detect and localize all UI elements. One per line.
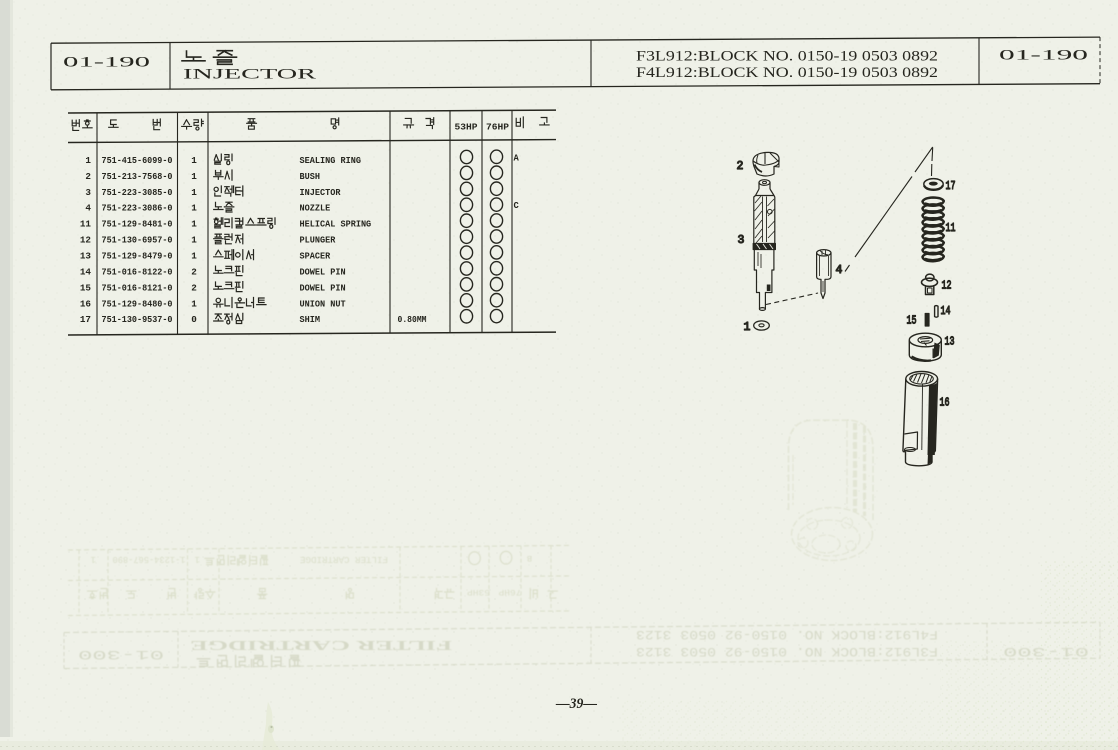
svg-text:1: 1: [191, 251, 197, 262]
svg-text:SHIM: SHIM: [300, 314, 321, 325]
svg-text:1: 1: [191, 171, 197, 182]
svg-text:NOZZLE: NOZZLE: [300, 203, 331, 214]
svg-text:751-129-8479-0: 751-129-8479-0: [102, 251, 173, 262]
svg-text:01-190: 01-190: [999, 48, 1088, 64]
svg-text:751-130-9537-0: 751-130-9537-0: [102, 314, 173, 325]
svg-text:C: C: [514, 201, 520, 211]
svg-text:3: 3: [738, 234, 745, 247]
svg-text:11: 11: [946, 222, 956, 235]
svg-text:751-415-6099-0: 751-415-6099-0: [102, 155, 173, 166]
svg-text:53HP: 53HP: [455, 122, 478, 133]
svg-text:751-016-8122-0: 751-016-8122-0: [102, 266, 173, 277]
svg-text:76HP: 76HP: [486, 121, 509, 132]
svg-text:1: 1: [85, 155, 91, 166]
svg-text:BUSH: BUSH: [300, 171, 320, 182]
svg-text:13: 13: [945, 336, 955, 349]
svg-text:F4L912:BLOCK NO. 0150-19 0503: F4L912:BLOCK NO. 0150-19 0503 0892: [636, 65, 938, 81]
svg-text:751-129-8480-0: 751-129-8480-0: [102, 298, 173, 309]
svg-text:16: 16: [80, 298, 92, 309]
svg-text:2: 2: [737, 160, 744, 173]
svg-text:4: 4: [836, 264, 843, 277]
svg-text:01-190: 01-190: [63, 55, 150, 71]
svg-text:17: 17: [946, 180, 956, 193]
svg-text:UNION NUT: UNION NUT: [300, 298, 346, 309]
svg-text:1: 1: [91, 554, 96, 564]
svg-text:1: 1: [744, 321, 751, 334]
svg-text:0: 0: [191, 314, 197, 325]
svg-text:F3L912:BLOCK NO. 0150-92 0503: F3L912:BLOCK NO. 0150-92 0503 3123: [636, 644, 938, 659]
svg-text:F4L912:BLOCK NO. 0150-92 0503: F4L912:BLOCK NO. 0150-92 0503 3123: [636, 627, 938, 642]
svg-text:1: 1: [191, 298, 197, 309]
svg-text:1: 1: [191, 235, 197, 246]
svg-text:11: 11: [80, 219, 92, 230]
svg-text:751-213-7568-0: 751-213-7568-0: [102, 171, 173, 182]
svg-text:F3L912:BLOCK NO. 0150-19 0503: F3L912:BLOCK NO. 0150-19 0503 0892: [636, 49, 938, 65]
svg-text:FILTER CARTRIDGE: FILTER CARTRIDGE: [300, 554, 388, 564]
svg-text:12: 12: [942, 280, 952, 293]
svg-text:SEALING RING: SEALING RING: [300, 155, 362, 166]
svg-text:751-016-8121-0: 751-016-8121-0: [102, 282, 173, 293]
svg-text:1: 1: [191, 203, 197, 214]
svg-text:14: 14: [80, 266, 92, 277]
svg-text:15: 15: [80, 282, 92, 293]
svg-text:2: 2: [191, 266, 197, 277]
svg-text:12: 12: [80, 235, 92, 246]
svg-text:751-223-3085-0: 751-223-3085-0: [102, 187, 173, 198]
svg-text:B: B: [527, 553, 532, 563]
svg-text:76HP: 76HP: [499, 587, 522, 597]
svg-text:2: 2: [85, 171, 91, 182]
svg-text:15: 15: [907, 315, 917, 328]
svg-text:1: 1: [191, 219, 197, 230]
svg-text:1-1234-567-890: 1-1234-567-890: [113, 554, 186, 564]
svg-text:SPACER: SPACER: [300, 251, 331, 262]
svg-text:751-129-8481-0: 751-129-8481-0: [102, 219, 173, 230]
svg-text:HELICAL SPRING: HELICAL SPRING: [300, 219, 372, 230]
svg-text:17: 17: [80, 314, 91, 325]
svg-text:01-300: 01-300: [78, 647, 164, 662]
svg-text:INJECTOR: INJECTOR: [183, 67, 317, 83]
svg-text:—39—: —39—: [555, 696, 597, 712]
svg-text:3: 3: [85, 187, 91, 198]
svg-text:0.80MM: 0.80MM: [398, 314, 427, 325]
svg-text:DOWEL PIN: DOWEL PIN: [300, 282, 346, 293]
svg-text:DOWEL PIN: DOWEL PIN: [300, 266, 346, 277]
svg-text:16: 16: [940, 397, 950, 410]
svg-text:FILTER CARTRIDGE: FILTER CARTRIDGE: [190, 637, 452, 652]
svg-text:2: 2: [191, 282, 197, 293]
svg-text:1: 1: [191, 155, 197, 166]
svg-text:A: A: [514, 153, 520, 163]
svg-text:13: 13: [80, 251, 92, 262]
svg-text:1: 1: [191, 187, 197, 198]
svg-text:53HP: 53HP: [467, 587, 490, 597]
svg-text:4: 4: [85, 203, 91, 214]
svg-text:1: 1: [195, 554, 200, 564]
svg-text:PLUNGER: PLUNGER: [300, 235, 336, 246]
svg-text:751-130-6957-0: 751-130-6957-0: [102, 235, 173, 246]
svg-text:14: 14: [941, 305, 951, 318]
svg-text:INJECTOR: INJECTOR: [300, 187, 341, 198]
svg-text:751-223-3086-0: 751-223-3086-0: [102, 203, 173, 214]
